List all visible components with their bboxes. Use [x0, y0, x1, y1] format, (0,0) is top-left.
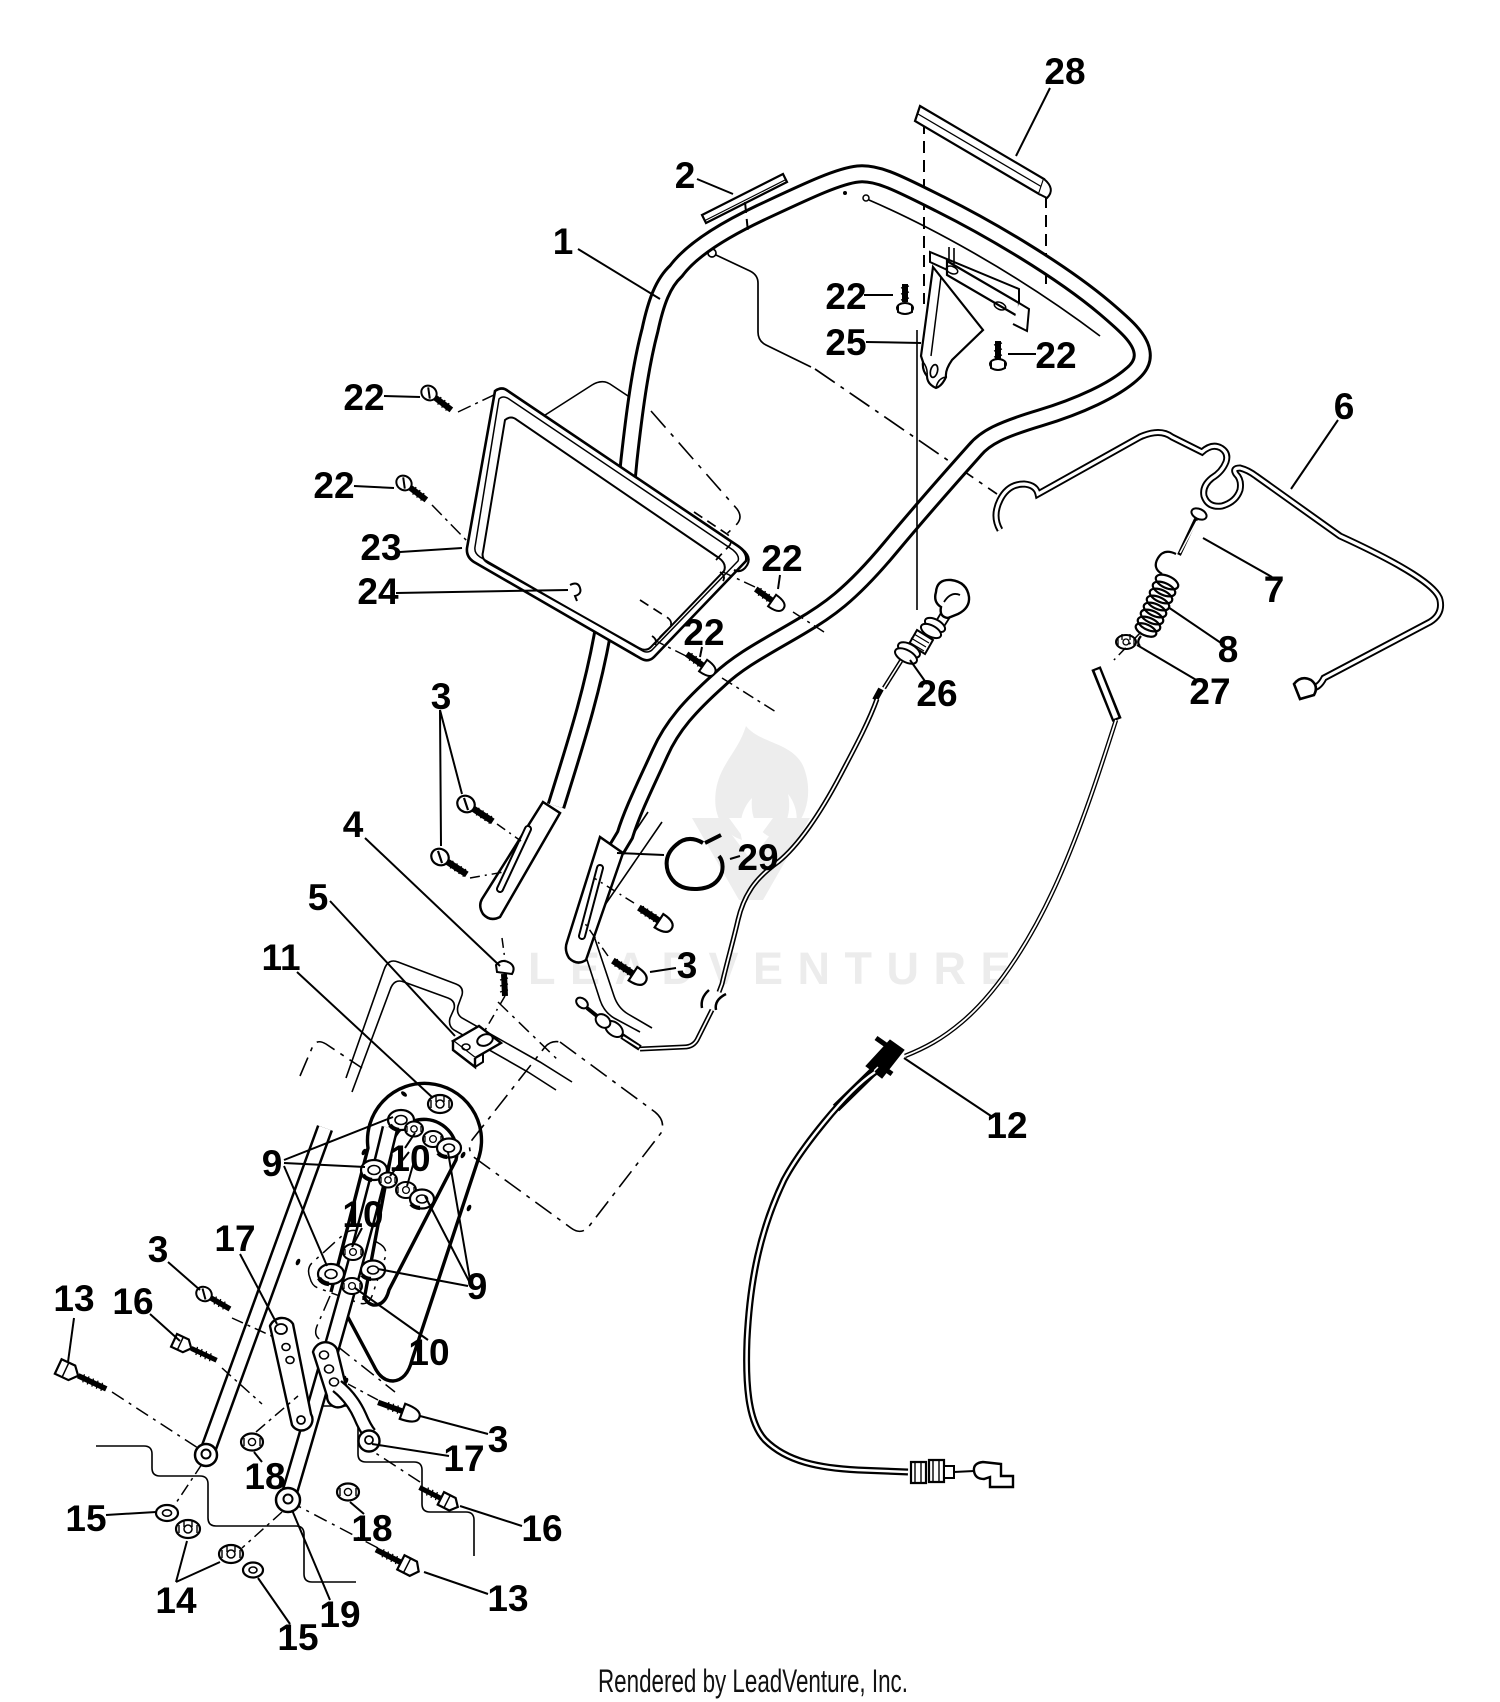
svg-text:17: 17	[214, 1218, 255, 1259]
svg-text:28: 28	[1044, 51, 1085, 92]
svg-text:22: 22	[313, 465, 354, 506]
svg-text:7: 7	[1264, 569, 1285, 610]
svg-text:15: 15	[65, 1498, 106, 1539]
svg-text:5: 5	[308, 877, 329, 918]
svg-text:16: 16	[521, 1508, 562, 1549]
svg-text:LEADVENTURE: LEADVENTURE	[528, 943, 1025, 994]
svg-text:19: 19	[319, 1594, 360, 1635]
svg-text:23: 23	[360, 527, 401, 568]
svg-text:6: 6	[1334, 386, 1355, 427]
svg-text:26: 26	[916, 673, 957, 714]
svg-text:1: 1	[553, 221, 574, 262]
svg-text:9: 9	[467, 1266, 488, 1307]
svg-text:11: 11	[261, 937, 300, 978]
svg-text:22: 22	[1035, 335, 1076, 376]
svg-text:3: 3	[148, 1229, 169, 1270]
svg-text:3: 3	[677, 945, 698, 986]
svg-text:14: 14	[155, 1580, 197, 1621]
svg-text:4: 4	[343, 804, 364, 845]
svg-text:12: 12	[986, 1105, 1027, 1146]
svg-text:25: 25	[825, 322, 866, 363]
svg-text:10: 10	[342, 1194, 383, 1235]
svg-text:13: 13	[487, 1578, 528, 1619]
svg-text:18: 18	[351, 1508, 392, 1549]
svg-text:16: 16	[112, 1281, 153, 1322]
svg-text:27: 27	[1189, 671, 1230, 712]
svg-text:22: 22	[343, 377, 384, 418]
svg-text:22: 22	[683, 612, 724, 653]
svg-text:17: 17	[443, 1438, 484, 1479]
svg-text:15: 15	[277, 1617, 318, 1658]
svg-text:18: 18	[244, 1456, 285, 1497]
svg-text:9: 9	[262, 1143, 283, 1184]
svg-text:22: 22	[761, 538, 802, 579]
svg-text:10: 10	[389, 1138, 430, 1179]
svg-text:29: 29	[737, 837, 778, 878]
svg-text:22: 22	[825, 276, 866, 317]
svg-text:13: 13	[53, 1278, 94, 1319]
svg-text:3: 3	[431, 676, 452, 717]
svg-text:10: 10	[408, 1332, 449, 1373]
svg-text:2: 2	[675, 155, 696, 196]
svg-text:8: 8	[1218, 629, 1239, 670]
svg-text:24: 24	[357, 571, 399, 612]
svg-text:3: 3	[488, 1419, 509, 1460]
svg-text:Rendered by LeadVenture, Inc.: Rendered by LeadVenture, Inc.	[598, 1663, 908, 1699]
